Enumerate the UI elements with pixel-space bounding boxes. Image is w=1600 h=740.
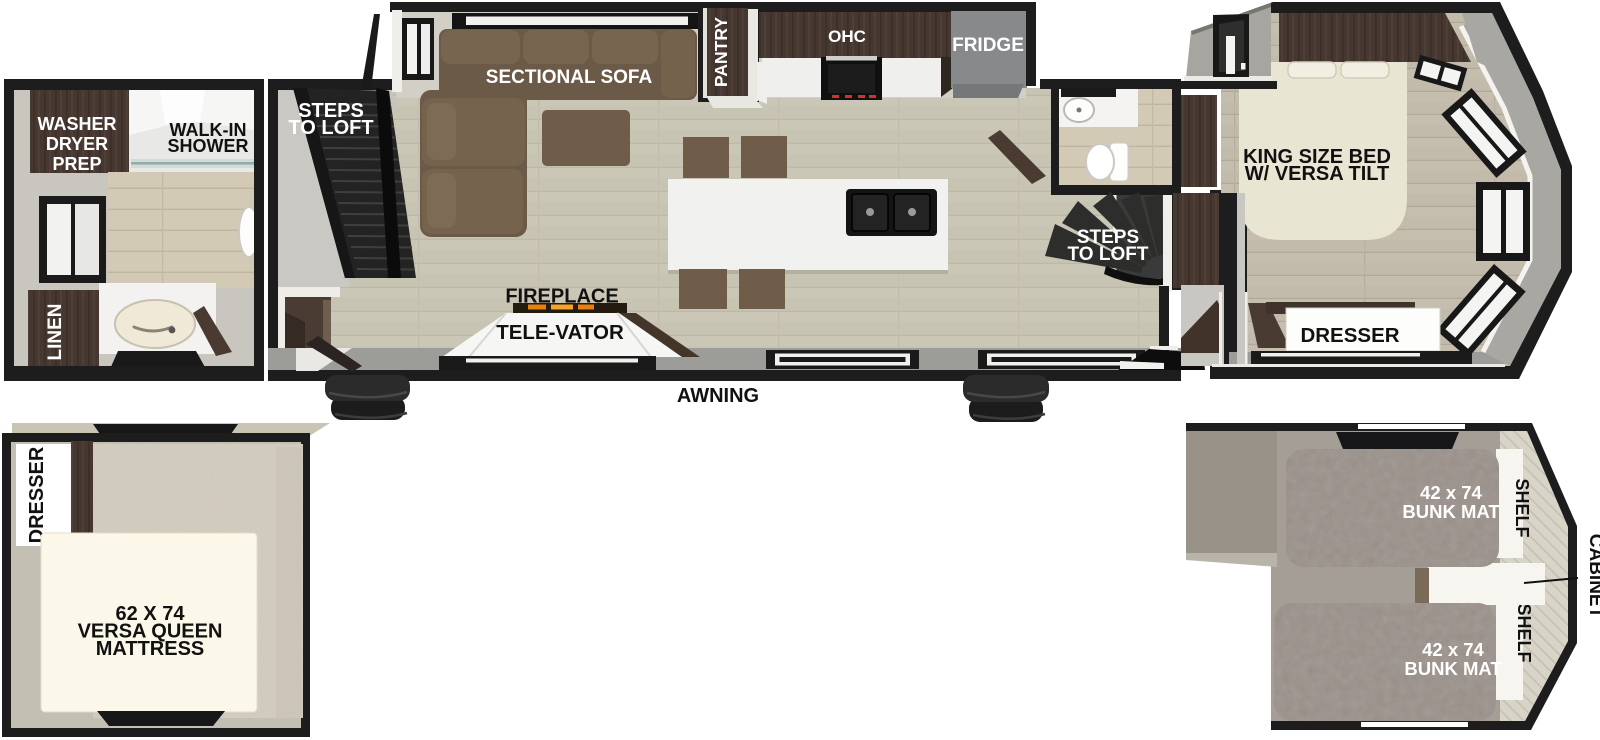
svg-text:BUNK MAT: BUNK MAT xyxy=(1402,501,1500,522)
svg-text:PANTRY: PANTRY xyxy=(711,17,731,87)
svg-text:DRESSER: DRESSER xyxy=(26,446,48,543)
svg-text:LINEN: LINEN xyxy=(45,304,66,361)
svg-text:OHC: OHC xyxy=(828,27,866,46)
svg-text:TELE-VATOR: TELE-VATOR xyxy=(496,321,624,344)
svg-text:WASHER: WASHER xyxy=(37,114,116,134)
svg-text:FRIDGE: FRIDGE xyxy=(952,35,1024,56)
svg-text:TO LOFT: TO LOFT xyxy=(288,117,373,139)
svg-text:SHELF: SHELF xyxy=(1514,603,1534,662)
svg-text:MATTRESS: MATTRESS xyxy=(96,638,205,660)
svg-text:42 x 74: 42 x 74 xyxy=(1420,482,1482,503)
svg-text:BUNK MAT: BUNK MAT xyxy=(1404,658,1502,679)
svg-text:DRESSER: DRESSER xyxy=(1300,324,1399,347)
svg-text:AWNING: AWNING xyxy=(677,385,759,407)
svg-text:W/ VERSA TILT: W/ VERSA TILT xyxy=(1245,163,1389,185)
svg-text:SHOWER: SHOWER xyxy=(168,136,249,156)
svg-text:CABINET: CABINET xyxy=(1585,534,1600,619)
svg-text:SHELF: SHELF xyxy=(1512,478,1532,537)
svg-text:SECTIONAL SOFA: SECTIONAL SOFA xyxy=(486,67,653,88)
svg-text:TO LOFT: TO LOFT xyxy=(1068,244,1149,265)
svg-text:PREP: PREP xyxy=(52,154,101,174)
svg-text:DRYER: DRYER xyxy=(46,134,108,154)
svg-text:FIREPLACE: FIREPLACE xyxy=(505,286,618,308)
svg-text:42 x 74: 42 x 74 xyxy=(1422,639,1484,660)
